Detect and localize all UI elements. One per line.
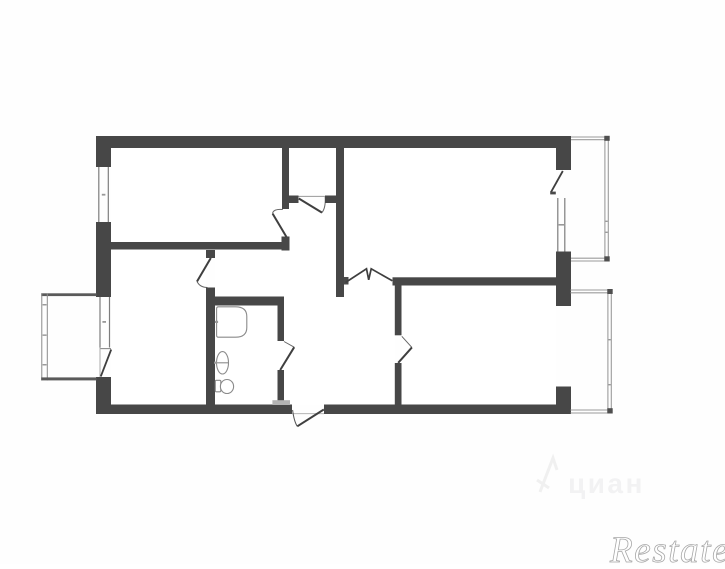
- svg-text:циан: циан: [568, 468, 645, 499]
- svg-text:Restate: Restate: [609, 530, 725, 564]
